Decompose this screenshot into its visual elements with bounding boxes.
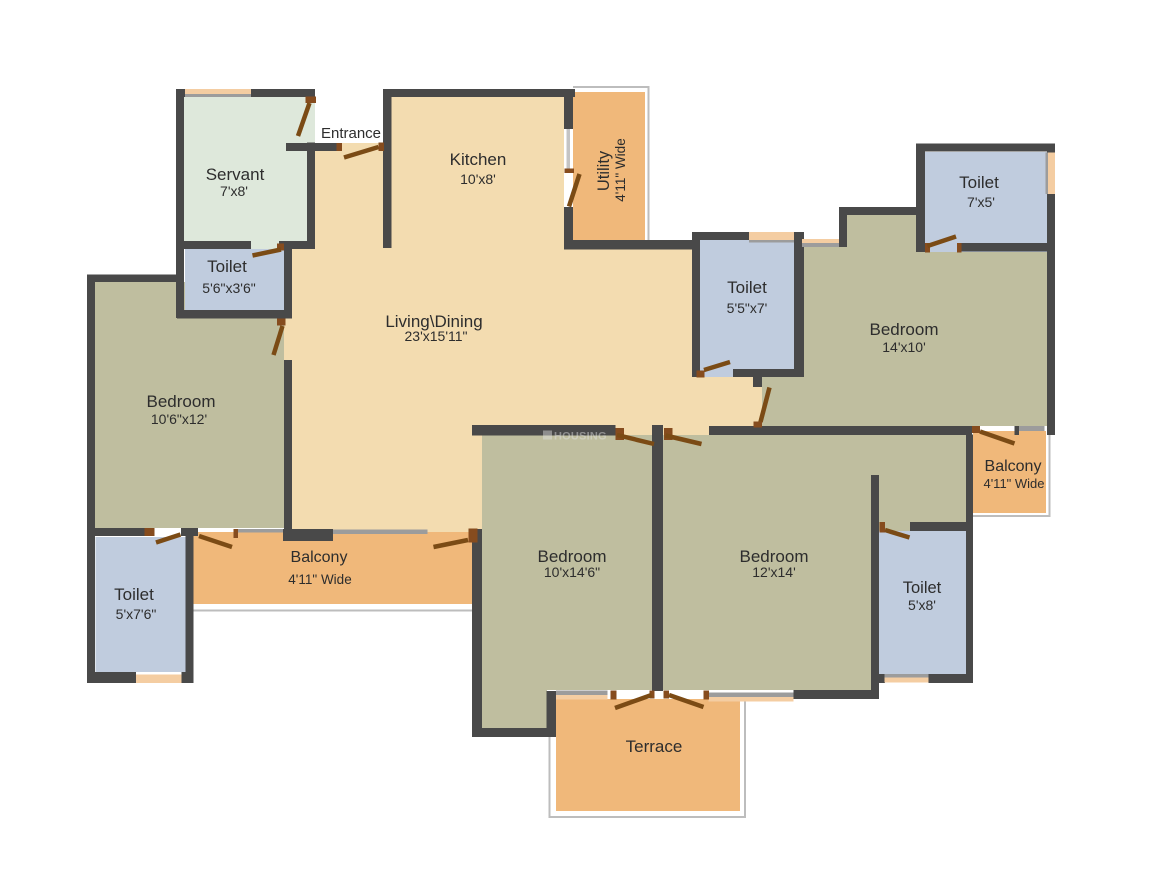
svg-text:14'x10': 14'x10': [882, 339, 926, 355]
svg-text:12'x14': 12'x14': [752, 564, 796, 580]
svg-text:Toilet: Toilet: [207, 257, 247, 276]
svg-text:7'x8': 7'x8': [220, 183, 248, 199]
svg-text:4'11" Wide: 4'11" Wide: [613, 138, 628, 201]
svg-text:Toilet: Toilet: [727, 278, 767, 297]
svg-text:5'5"x7': 5'5"x7': [727, 300, 768, 316]
svg-text:4'11" Wide: 4'11" Wide: [288, 572, 351, 587]
svg-text:Toilet: Toilet: [959, 173, 999, 192]
svg-text:Terrace: Terrace: [626, 737, 683, 756]
svg-text:4'11" Wide: 4'11" Wide: [983, 476, 1044, 491]
svg-text:Utility: Utility: [595, 150, 613, 191]
svg-text:10'6"x12': 10'6"x12': [151, 411, 207, 427]
svg-text:Balcony: Balcony: [985, 458, 1042, 475]
svg-text:Toilet: Toilet: [903, 579, 942, 597]
svg-text:Toilet: Toilet: [114, 585, 154, 604]
svg-text:5'6"x3'6": 5'6"x3'6": [202, 280, 255, 296]
svg-text:Balcony: Balcony: [291, 549, 348, 566]
svg-text:Bedroom: Bedroom: [147, 392, 216, 411]
svg-text:Bedroom: Bedroom: [870, 320, 939, 339]
svg-text:Kitchen: Kitchen: [450, 150, 507, 169]
svg-text:Entrance: Entrance: [321, 125, 381, 142]
svg-text:5'x7'6": 5'x7'6": [116, 606, 157, 622]
svg-text:23'x15'11": 23'x15'11": [405, 328, 468, 344]
svg-text:5'x8': 5'x8': [908, 597, 936, 613]
svg-text:10'x8': 10'x8': [460, 171, 496, 187]
svg-text:Servant: Servant: [206, 165, 265, 184]
svg-text:HOUSING: HOUSING: [554, 431, 607, 443]
svg-text:7'x5': 7'x5': [967, 194, 995, 210]
svg-text:10'x14'6": 10'x14'6": [544, 564, 600, 580]
